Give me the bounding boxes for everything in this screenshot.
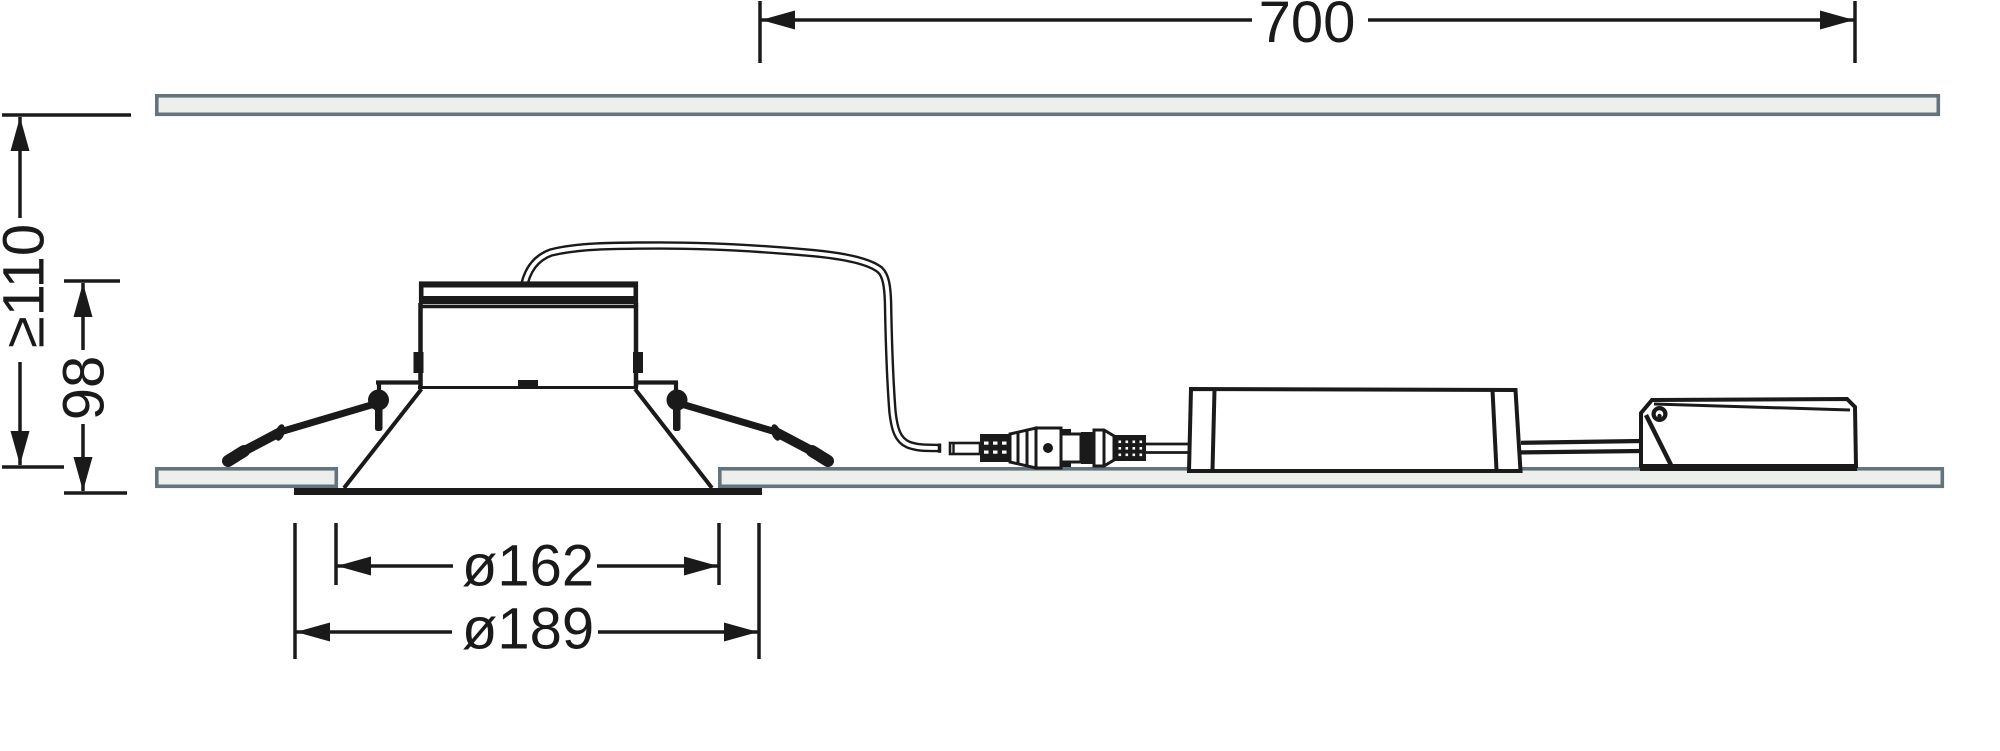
svg-text:98: 98	[52, 356, 117, 421]
svg-text:700: 700	[1259, 0, 1356, 55]
svg-text:≥110: ≥110	[0, 224, 57, 348]
svg-text:ø189: ø189	[462, 597, 594, 662]
svg-text:ø162: ø162	[462, 534, 594, 599]
